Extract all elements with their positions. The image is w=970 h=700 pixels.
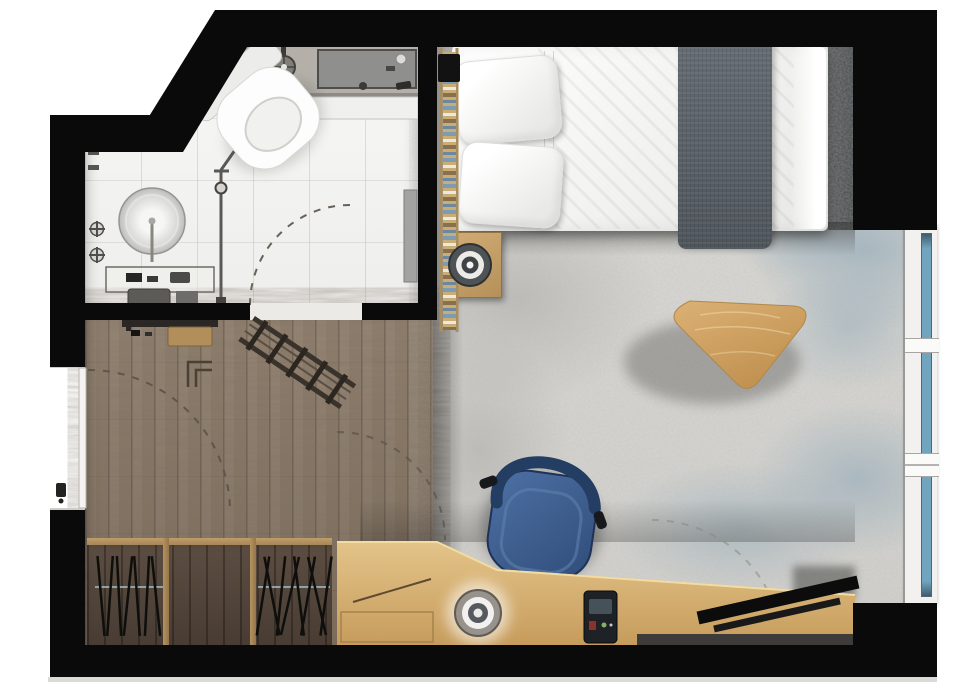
wall-bathroom-south-left [85,303,250,320]
floor-plan-canvas [0,0,970,700]
hanger [320,556,331,635]
hanger [145,556,149,636]
wall-hook-outline [188,362,212,387]
toiletry-icon [147,276,158,282]
faucet-handle-icon [89,247,105,263]
washbasin [119,188,185,262]
hanger [152,556,160,636]
luggage-rack [237,314,357,410]
toiletry-icon [170,272,190,283]
door-handle-icon [56,483,66,497]
shampoo-bottle-icon [396,54,406,64]
soap-icon [386,66,395,71]
wall-bathroom-south-right [362,303,437,320]
coffee-table [624,301,806,404]
shoe-icon [145,332,152,336]
hanger [124,556,132,636]
wardrobe-hangers [95,556,332,636]
hall-stool [168,327,212,346]
toiletry-icon [126,273,142,282]
speaker-icon [449,244,491,286]
door-leaf [79,368,86,508]
hanger [107,556,113,636]
bathroom-door-arc [250,205,350,305]
hanger [117,556,121,636]
fixture-layer [0,0,970,700]
desk-speaker-icon [455,590,501,636]
exterior-shadow [48,677,937,682]
wall-bathroom-divider [418,45,437,312]
wall-corner-bottom-right [853,603,937,677]
ladder-cap [438,54,460,82]
hanger [134,556,140,636]
door-handle-icon [59,499,64,504]
wall-bottom [50,645,858,677]
wall-top [215,10,858,47]
shower-knob-icon [359,82,367,90]
hall-door-arc [337,432,445,540]
desk [337,541,858,647]
hanger [98,556,105,636]
faucet-handle-icon [89,221,105,237]
ladder-rack [438,48,460,332]
entry-door [50,364,86,512]
wall-west-upper [50,115,85,367]
wall-corner-top-right [853,10,937,230]
phone-dock [584,591,617,643]
hanger [301,557,315,636]
towel-hook-icon [88,165,99,170]
bathroom-threshold [250,303,362,320]
wall-mirror-panel [404,190,417,282]
entry-door-arc [88,370,230,512]
shoe-icon [131,330,140,336]
bath-tray [176,291,198,303]
